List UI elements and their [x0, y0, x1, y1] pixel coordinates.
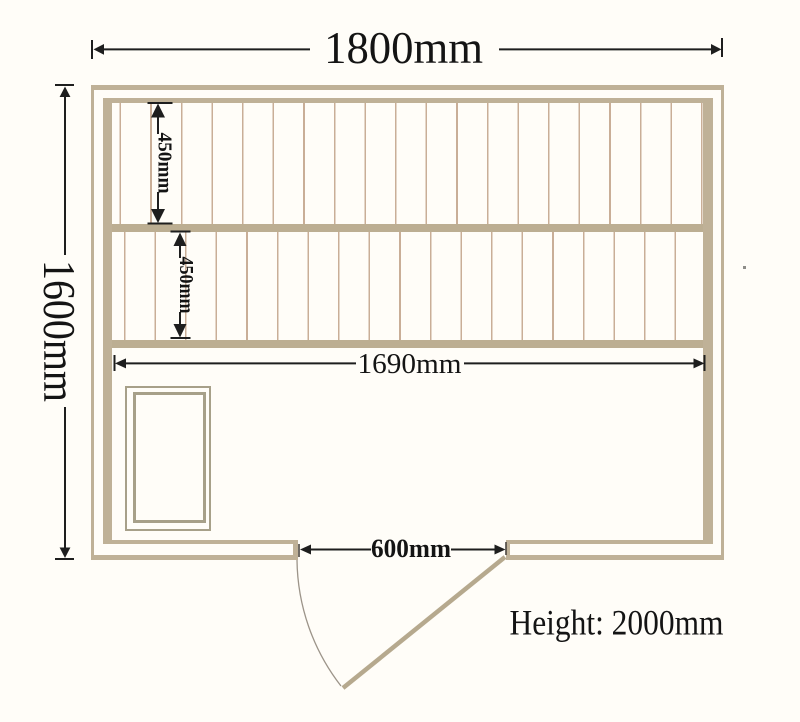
svg-text:1600mm: 1600mm	[34, 260, 85, 402]
svg-text:1690mm: 1690mm	[358, 348, 462, 380]
svg-text:Height: 2000mm: Height: 2000mm	[510, 603, 724, 643]
svg-text:450mm: 450mm	[154, 133, 176, 194]
svg-text:450mm: 450mm	[175, 257, 197, 314]
svg-text:1800mm: 1800mm	[324, 22, 483, 73]
svg-text:600mm: 600mm	[371, 534, 451, 563]
